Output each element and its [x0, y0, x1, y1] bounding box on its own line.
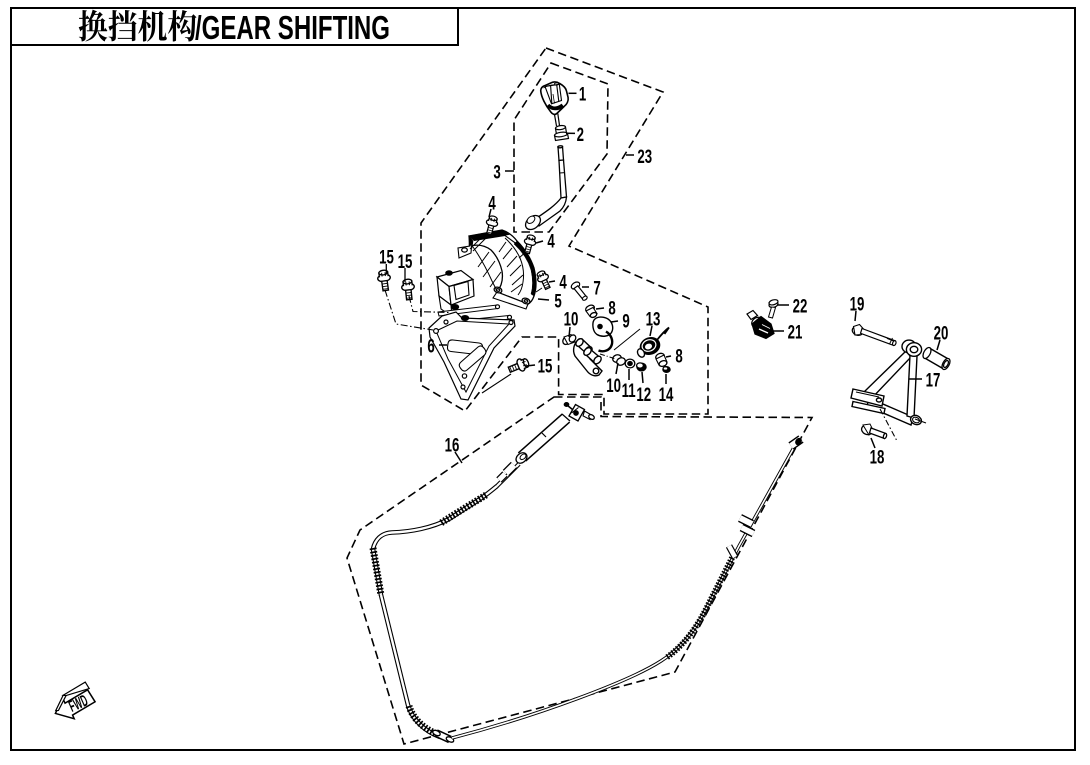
svg-text:9: 9	[622, 310, 629, 332]
svg-text:18: 18	[870, 446, 885, 468]
svg-text:1: 1	[579, 83, 586, 105]
svg-text:22: 22	[793, 295, 808, 317]
svg-text:14: 14	[659, 383, 674, 405]
svg-text:11: 11	[622, 380, 636, 402]
svg-text:17: 17	[926, 369, 941, 391]
svg-text:16: 16	[445, 434, 460, 456]
svg-text:23: 23	[637, 145, 652, 167]
svg-text:2: 2	[577, 123, 584, 145]
svg-text:7: 7	[593, 277, 600, 299]
svg-text:3: 3	[493, 161, 500, 183]
svg-text:15: 15	[538, 355, 553, 377]
svg-text:10: 10	[606, 374, 621, 396]
svg-text:4: 4	[488, 192, 496, 214]
svg-text:15: 15	[398, 250, 413, 272]
svg-text:8: 8	[608, 297, 615, 319]
svg-text:4: 4	[547, 230, 555, 252]
svg-text:15: 15	[379, 246, 394, 268]
svg-text:6: 6	[427, 335, 434, 357]
svg-text:21: 21	[788, 321, 803, 343]
svg-text:19: 19	[850, 293, 865, 315]
svg-text:13: 13	[646, 308, 661, 330]
svg-text:5: 5	[554, 290, 561, 312]
svg-text:/GEAR SHIFTING: /GEAR SHIFTING	[195, 9, 390, 46]
svg-text:20: 20	[934, 322, 949, 344]
svg-text:12: 12	[636, 384, 651, 406]
svg-text:10: 10	[564, 308, 579, 330]
svg-text:8: 8	[675, 345, 682, 367]
